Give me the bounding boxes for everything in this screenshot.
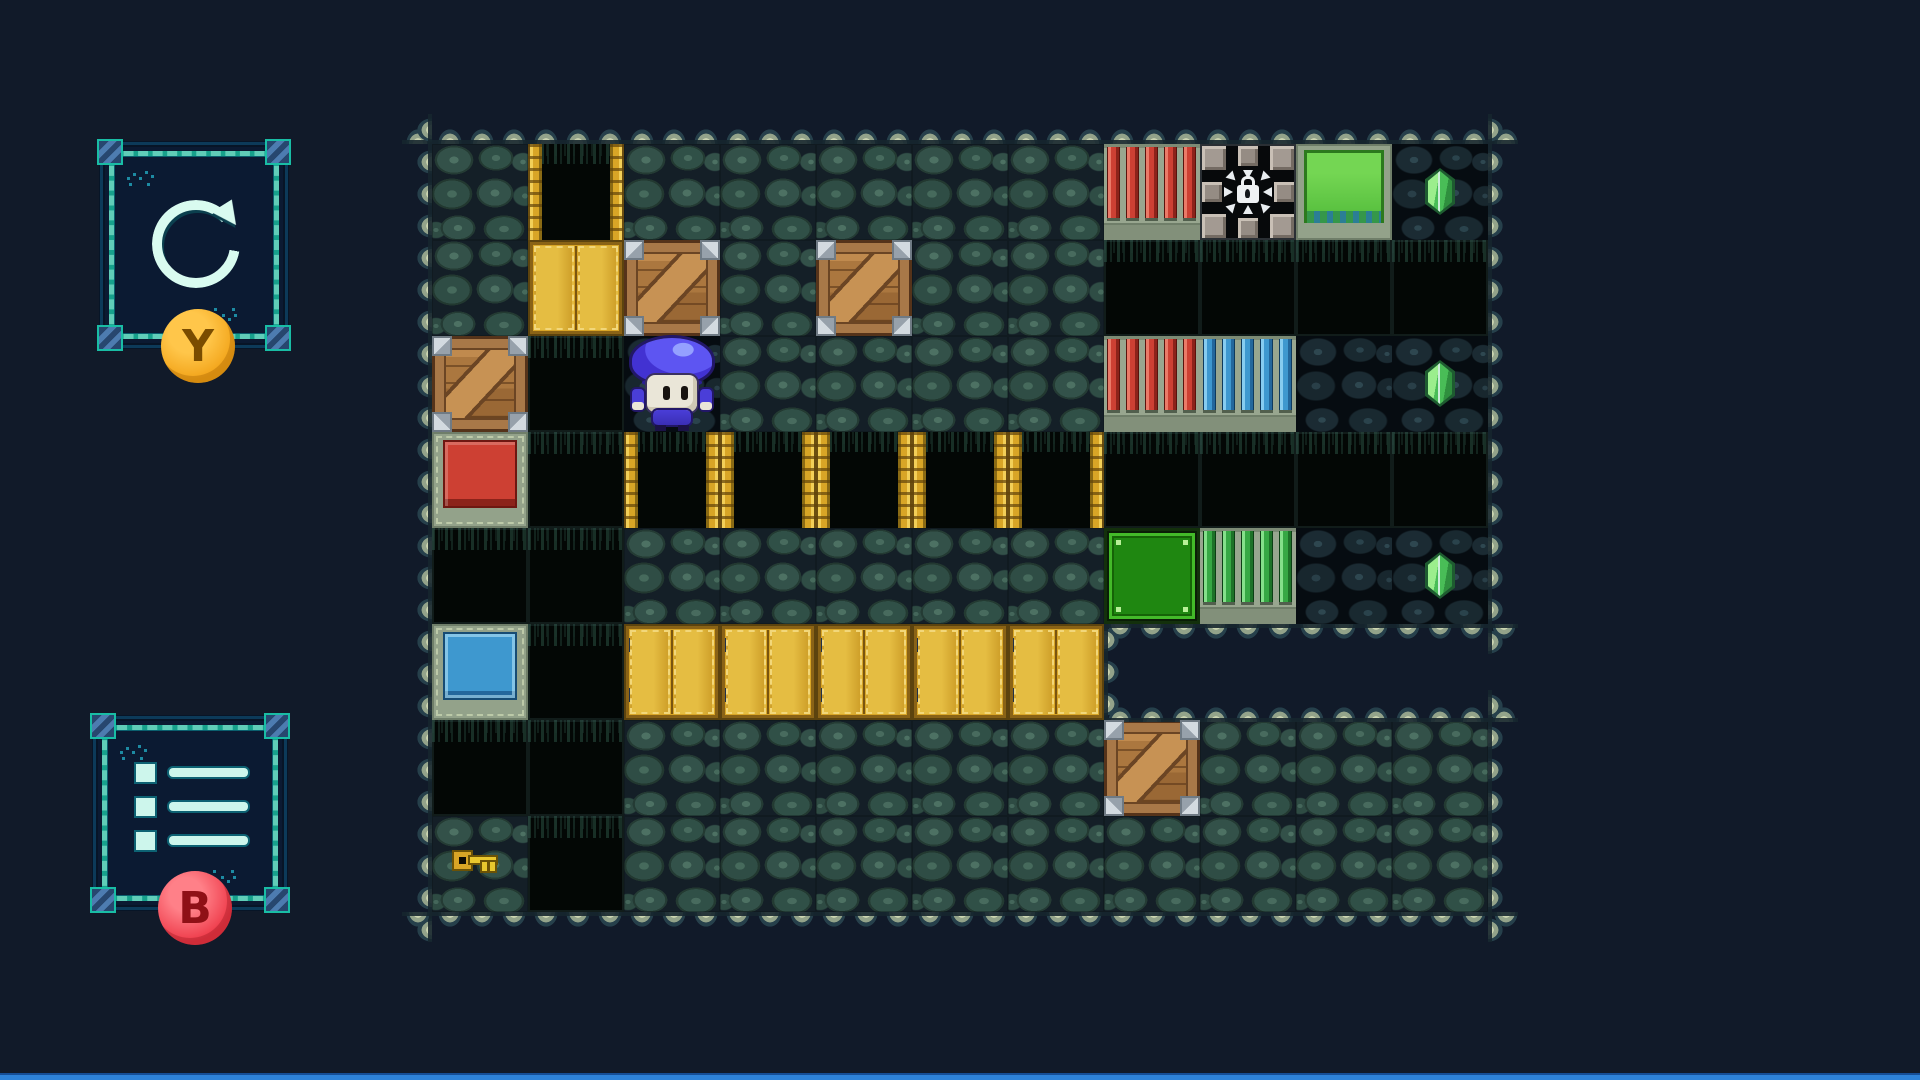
board-border-edge [1488,690,1518,942]
frame-corner [90,887,116,913]
pit-tile [528,336,624,432]
pit-tile [528,720,624,816]
gold-gate-shaft-tile [528,144,624,240]
pit-tile [528,528,624,624]
gold-bridge-tile [1008,624,1104,720]
frame-corner [264,713,290,739]
pit-tile [1296,240,1392,336]
stone-floor-tile [720,528,816,624]
gold-bridge-tile [816,624,912,720]
frame-corner [97,325,123,351]
stone-floor-tile [720,144,816,240]
board-border-edge [402,114,1518,144]
pit-tile [528,432,624,528]
board-border-edge [402,912,1518,942]
stone-floor-tile [1008,240,1104,336]
stone-floor-tile [624,720,720,816]
wooden-crate-tile [816,240,912,336]
stone-floor-tile [1200,816,1296,912]
stone-floor-tile [720,336,816,432]
frame-corner [90,713,116,739]
dark-stone-floor-tile [1296,528,1392,624]
stone-floor-tile [912,816,1008,912]
bottom-accent-bar [0,1073,1920,1080]
stone-floor-tile [816,816,912,912]
pit-tile [528,624,624,720]
stone-floor-tile [432,240,528,336]
stone-floor-tile [1008,720,1104,816]
b-key-badge: B [158,871,232,945]
pit-tile [1104,432,1200,528]
gold-gate-shaft-tile [1008,432,1104,528]
stone-floor-tile [1296,816,1392,912]
pit-tile [1392,432,1488,528]
game-screen: Y B [0,0,1920,1080]
stone-floor-tile [720,816,816,912]
gold-bridge-tile [720,624,816,720]
stone-floor-tile [1200,720,1296,816]
pit-tile [1296,432,1392,528]
gold-door-tile [528,240,624,336]
stone-floor-tile [912,336,1008,432]
stone-floor-tile [624,144,720,240]
pit-tile [1200,240,1296,336]
stone-floor-tile [816,528,912,624]
frame-corner [97,139,123,165]
dark-stone-floor-tile [1296,336,1392,432]
gold-gate-shaft-tile [912,432,1008,528]
frame-corner [265,139,291,165]
board-border-edge [1104,624,1518,654]
wooden-crate-tile [432,336,528,432]
pit-tile [1392,240,1488,336]
pit-tile [1200,432,1296,528]
gold-bridge-tile [912,624,1008,720]
gold-gate-shaft-tile [720,432,816,528]
wooden-crate-tile [624,240,720,336]
board-border-edge [402,114,432,942]
board-border-edge [1488,114,1518,654]
gold-gate-shaft-tile [624,432,720,528]
stone-floor-tile [912,240,1008,336]
pit-tile [528,816,624,912]
stone-floor-tile [624,528,720,624]
frame-corner [265,325,291,351]
stone-floor-tile [816,144,912,240]
red-bars-tile [1104,336,1200,432]
stone-floor-tile [1392,816,1488,912]
frame-corner [264,887,290,913]
pit-tile [1104,240,1200,336]
gem-item [1392,144,1488,240]
wooden-crate-tile [1104,720,1200,816]
red-bars-tile [1104,144,1200,240]
stone-floor-tile [912,144,1008,240]
stone-floor-tile [816,336,912,432]
pit-tile [432,528,528,624]
stone-floor-tile [1008,816,1104,912]
player-mushroom [624,336,720,432]
gold-gate-shaft-tile [816,432,912,528]
green-jelly-block-tile [1296,144,1392,240]
board-border-edge [1104,692,1518,722]
blue-bars-tile [1200,336,1296,432]
locked-vault-tile [1200,144,1296,240]
stone-floor-tile [1008,528,1104,624]
stone-floor-tile [720,240,816,336]
stone-floor-tile [1008,336,1104,432]
stone-floor-tile [432,144,528,240]
stone-floor-tile [624,816,720,912]
stone-floor-tile [912,528,1008,624]
red-block-tile [432,432,528,528]
stone-floor-tile [1104,816,1200,912]
gold-bridge-tile [624,624,720,720]
green-block-tile [1104,528,1200,624]
gem-item [1392,336,1488,432]
stone-floor-tile [720,720,816,816]
key-item [432,816,528,912]
pit-tile [432,720,528,816]
stone-floor-tile [1392,720,1488,816]
y-key-badge: Y [161,309,235,383]
blue-block-tile [432,624,528,720]
stone-floor-tile [816,720,912,816]
gem-item [1392,528,1488,624]
stone-floor-tile [912,720,1008,816]
stone-floor-tile [1008,144,1104,240]
green-bars-tile [1200,528,1296,624]
stone-floor-tile [1296,720,1392,816]
